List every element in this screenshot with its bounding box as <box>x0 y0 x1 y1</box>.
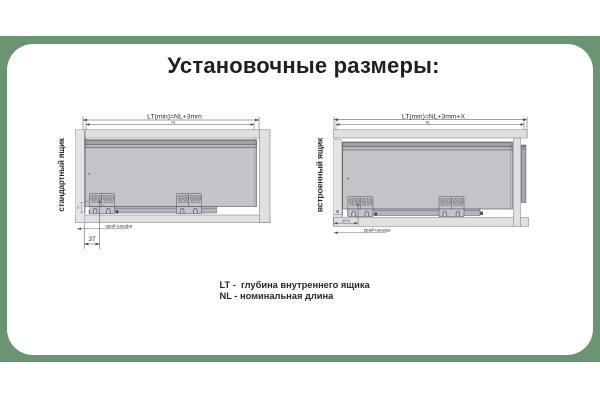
svg-text:LT(min)=NL+3mm+X: LT(min)=NL+3mm+X <box>402 113 466 120</box>
svg-text:37+X: 37+X <box>342 219 351 223</box>
svg-text:встроенный ящик: встроенный ящик <box>314 137 324 212</box>
svg-text:37: 37 <box>88 236 96 243</box>
svg-text:край шкафа: край шкафа <box>364 227 391 234</box>
svg-text:край шкафа: край шкафа <box>106 223 133 230</box>
svg-text:33: 33 <box>76 205 80 209</box>
svg-text:NL: NL <box>426 121 430 125</box>
svg-text:NL: NL <box>171 121 175 125</box>
svg-text:LT(min)=NL+3mm: LT(min)=NL+3mm <box>147 113 202 120</box>
svg-text:стандартный ящик: стандартный ящик <box>57 137 66 212</box>
